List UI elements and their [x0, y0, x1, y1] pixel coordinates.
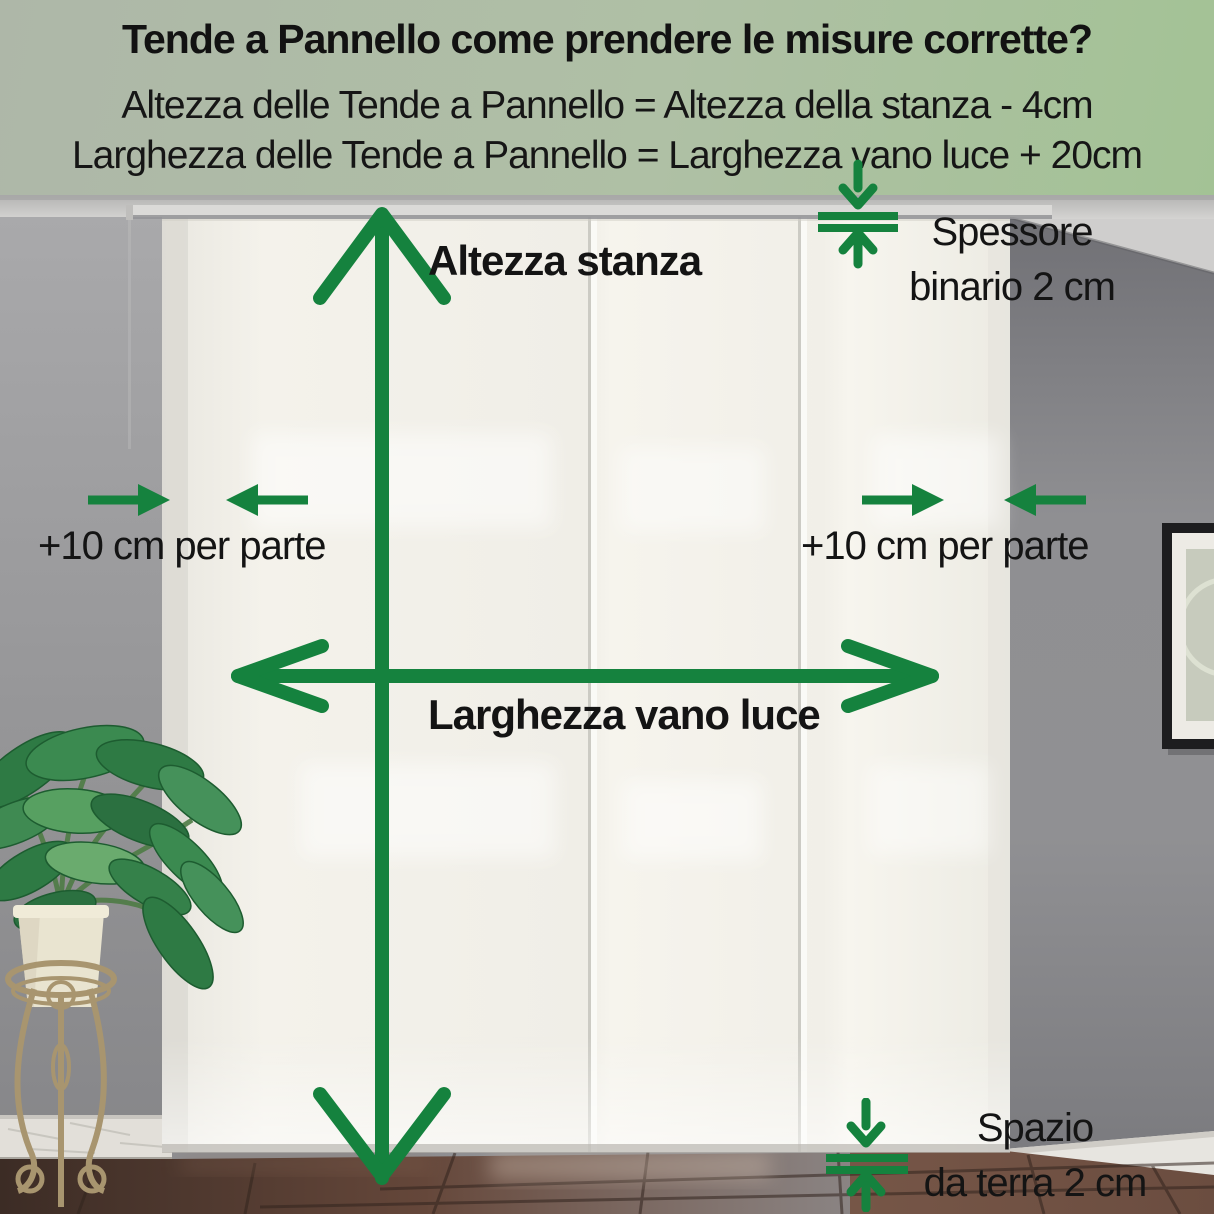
track-thickness-line1: Spessore [872, 205, 1152, 260]
curtain-panels [162, 213, 1010, 1153]
page-title: Tende a Pannello come prendere le misure… [0, 17, 1214, 61]
floor-gap-line1: Spazio [880, 1101, 1190, 1156]
formula-height: Altezza delle Tende a Pannello = Altezza… [0, 84, 1214, 128]
floor-gap-line2: da terra 2 cm [880, 1156, 1190, 1211]
left-wall [0, 217, 172, 1214]
formula-width: Larghezza delle Tende a Pannello = Largh… [0, 134, 1214, 178]
header-banner: Tende a Pannello come prendere le misure… [0, 0, 1214, 195]
window-width-label: Larghezza vano luce [428, 691, 820, 739]
room-height-label: Altezza stanza [428, 237, 701, 285]
picture-frame [1162, 523, 1214, 755]
side-allowance-left-label: +10 cm per parte [38, 524, 326, 569]
track-thickness-line2: binario 2 cm [872, 260, 1152, 315]
side-allowance-right-label: +10 cm per parte [801, 524, 1089, 569]
track-thickness-label: Spessore binario 2 cm [872, 205, 1152, 315]
floor-gap-label: Spazio da terra 2 cm [880, 1101, 1190, 1211]
curtain-measurement-infographic: Tende a Pannello come prendere le misure… [0, 0, 1214, 1214]
